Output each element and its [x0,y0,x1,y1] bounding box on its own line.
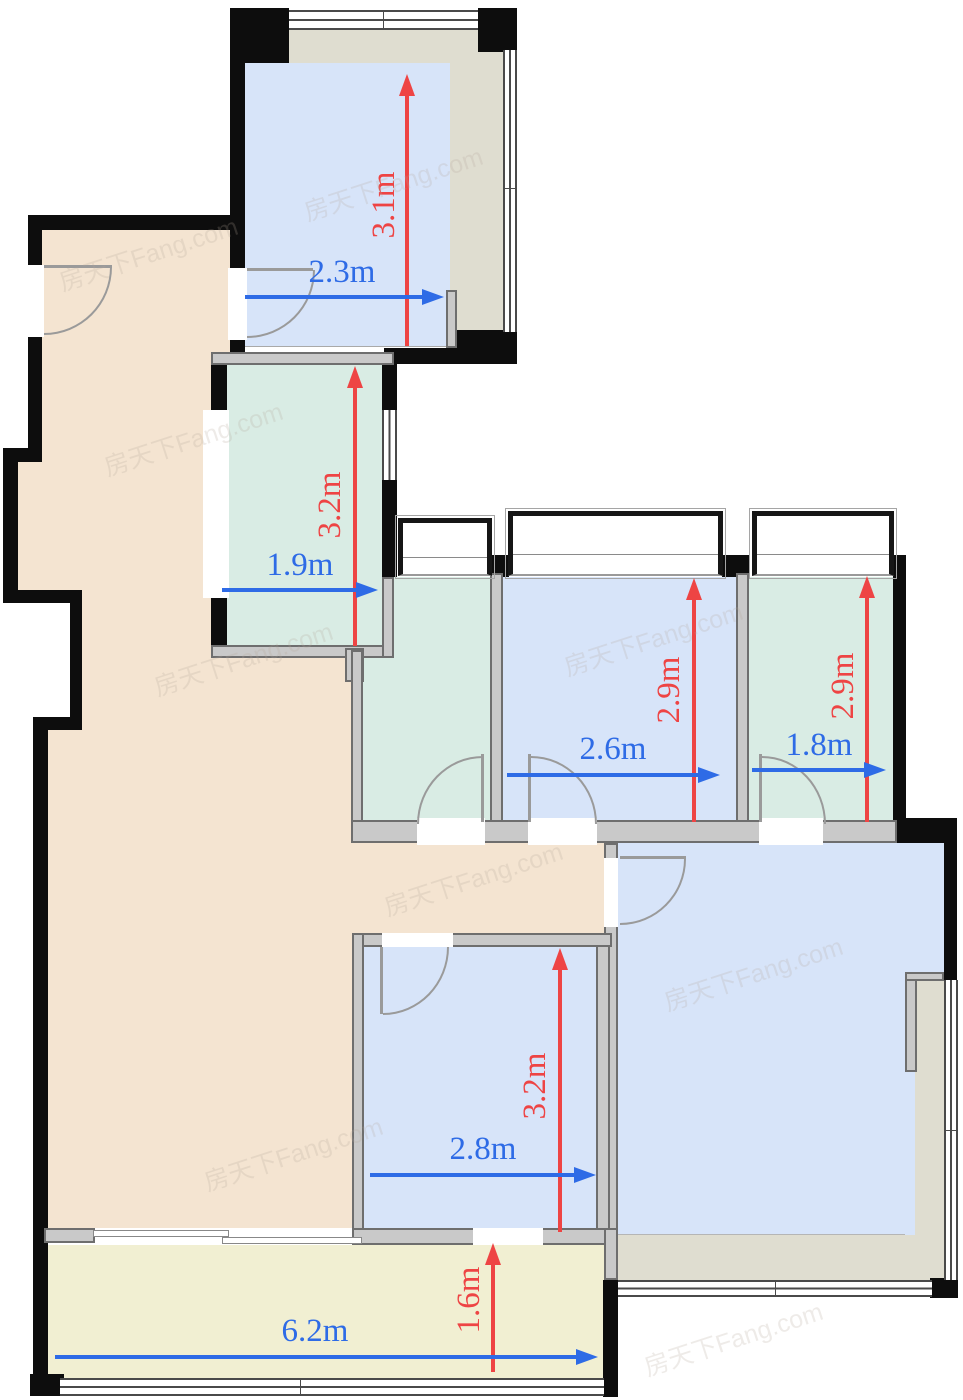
bay-window-sill [513,554,718,555]
dim-line-horizontal [370,1173,575,1177]
dim-line-horizontal [245,295,426,299]
wall-segment [446,290,457,348]
wall-segment [736,573,749,822]
dim-label-lower-width: 2.8m [413,1132,553,1166]
wall-segment [211,352,394,365]
window-rail [503,50,517,332]
door-gap [26,265,44,337]
bay-boundary-line [618,1234,905,1235]
wall-segment [28,335,42,462]
window-rail [60,1378,604,1396]
dim-label-balcony-height: 1.6m [452,1230,486,1370]
wall-segment [230,338,245,352]
wall-segment [455,330,517,350]
master-room-floor [618,980,915,1235]
upper-room-floor [227,365,382,645]
window-rail [382,410,397,480]
dim-line-horizontal [222,588,358,592]
wall-segment [384,348,517,364]
window-rail-tick [944,1130,958,1131]
wall-segment [930,1278,958,1298]
wall-segment [352,933,364,1245]
wall-segment [905,972,944,981]
sliding-door-panel [93,1230,229,1237]
wall-segment [28,215,42,267]
window-rail-tick [775,1280,776,1297]
dim-line-vertical [692,596,696,822]
window-rail-tick [300,1378,301,1396]
wall-segment [604,1228,618,1280]
dim-line-vertical [558,966,562,1232]
dim-label-right-width: 1.8m [749,728,889,762]
dim-line-vertical [353,384,357,646]
wall-segment [382,577,394,658]
bay-window [398,518,492,576]
wall-segment [351,650,363,832]
dim-line-horizontal [507,773,699,777]
wall-segment [44,1228,95,1243]
bay-window-sill [757,554,889,555]
wall-segment [478,8,517,52]
master-bay-floor [618,1235,915,1280]
dim-arrowhead-right [864,762,886,778]
bay-window [752,511,894,576]
dim-arrowhead-right [576,1349,598,1365]
wall-segment [382,480,397,577]
bay-window [508,511,723,576]
wall-segment [230,8,289,63]
door-gap [228,268,247,340]
dim-label-upper-width: 1.9m [230,548,370,582]
window-rail-tick [383,10,384,30]
dim-arrowhead-right [574,1167,596,1183]
wall-segment [893,818,957,843]
dim-arrowhead-right [422,289,444,305]
wall-segment [70,603,82,730]
wall-segment [893,555,906,820]
window-gap [203,410,229,598]
dim-line-vertical [865,594,869,822]
wall-segment [30,1374,64,1396]
master-bay-floor [915,980,944,1280]
window-rail-tick [503,188,517,189]
door-gap [382,933,453,947]
dim-line-horizontal [752,768,865,772]
wall-segment [3,448,18,603]
door-gap [604,858,618,927]
bay-window-sill [403,557,487,558]
wall-segment [905,972,917,1072]
wall-segment [490,573,503,822]
wall-segment [28,215,235,230]
dim-label-top-width: 2.3m [272,255,412,289]
dim-line-vertical [405,92,409,346]
dim-arrowhead-right [356,582,378,598]
wall-segment [3,590,82,603]
wall-segment [944,843,957,980]
bathroom-floor [394,577,490,658]
wall-segment [596,933,610,1245]
sliding-door-panel [222,1237,362,1244]
dim-arrowhead-right [698,767,720,783]
watermark: 房天下Fang.com [639,1292,827,1384]
wall-segment [33,717,48,1378]
floorplan-canvas: 3.1m 2.3m 3.2m 1.9m 2.9m 2.6m 2.9m 1.8m … [0,0,963,1400]
wall-segment [603,1280,618,1397]
dim-label-middle-width: 2.6m [543,732,683,766]
dim-line-horizontal [55,1355,577,1359]
dim-label-balcony-width: 6.2m [245,1314,385,1348]
